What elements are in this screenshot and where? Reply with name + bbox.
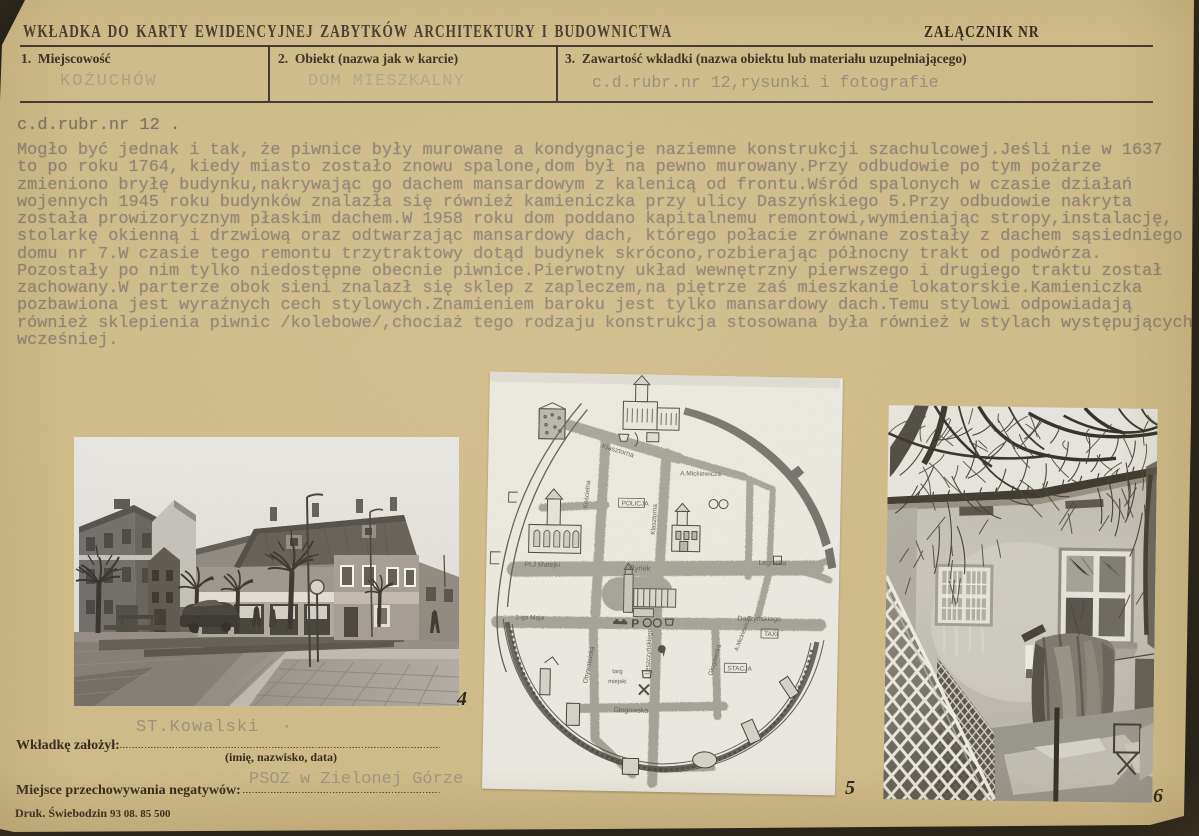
svg-text:A.Mickiewicza: A.Mickiewicza xyxy=(680,470,721,478)
svg-text:targ: targ xyxy=(612,669,622,675)
svg-text:STACJA: STACJA xyxy=(727,665,752,672)
svg-text:Rynek: Rynek xyxy=(629,563,651,572)
svg-text:miejski: miejski xyxy=(608,679,626,685)
svg-text:Legnicka: Legnicka xyxy=(758,560,786,568)
svg-text:1-go Maja: 1-go Maja xyxy=(515,614,544,622)
svg-text:POLICJA: POLICJA xyxy=(621,500,649,508)
svg-text:Pl.J Matejki: Pl.J Matejki xyxy=(524,561,560,569)
svg-text:TAXI: TAXI xyxy=(764,631,778,638)
svg-text:P: P xyxy=(631,616,639,630)
svg-text:Głogowska: Głogowska xyxy=(613,707,648,715)
